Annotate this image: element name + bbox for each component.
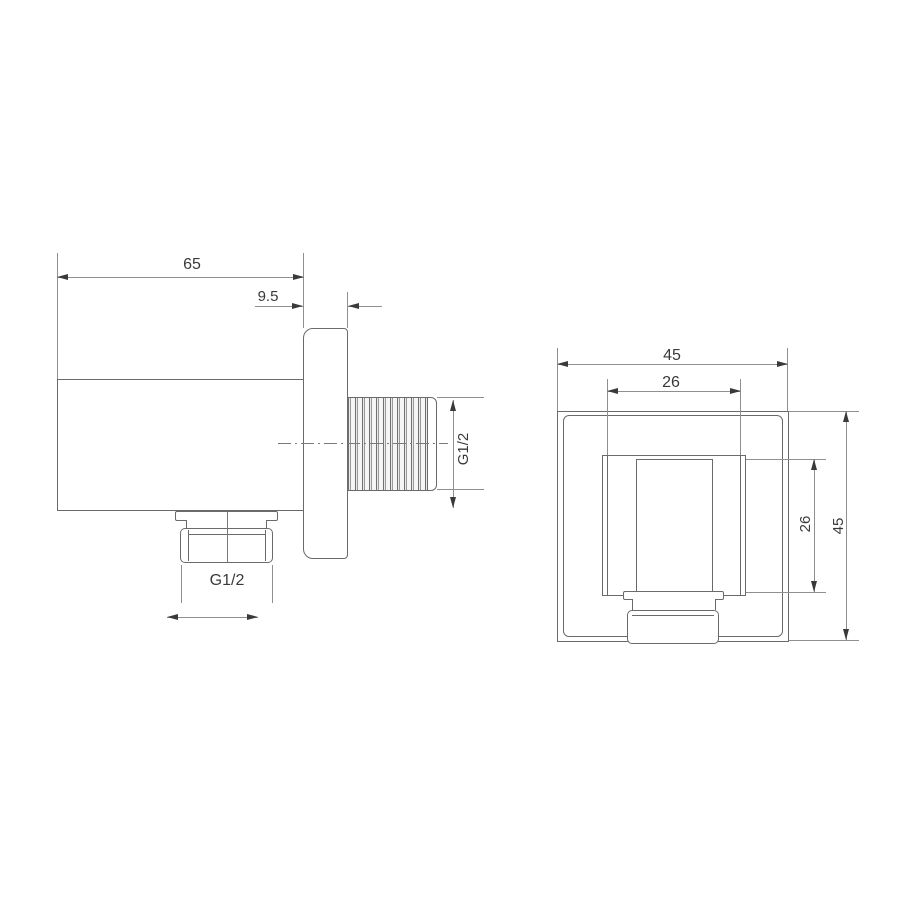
extension-line — [181, 565, 182, 603]
extension-line — [789, 640, 859, 641]
arrowhead — [167, 614, 178, 620]
extension-line — [272, 565, 273, 603]
dimension-line — [167, 617, 258, 618]
dim-body-height-label: 26 — [798, 516, 814, 533]
nut-chamfer-top — [632, 615, 714, 616]
arrowhead — [450, 400, 456, 411]
front-neck — [632, 599, 716, 610]
extension-line — [557, 348, 558, 411]
dim-plate-width-label: 45 — [650, 347, 694, 365]
arrowhead — [607, 388, 618, 394]
elbow-body-outline — [57, 379, 303, 511]
extension-line — [57, 253, 58, 379]
arrowhead — [292, 303, 303, 309]
body-edge-left — [607, 456, 608, 595]
arrowhead — [811, 581, 817, 592]
front-nut — [627, 610, 719, 644]
arrowhead — [730, 388, 741, 394]
center-line — [278, 443, 448, 444]
arrowhead — [348, 303, 359, 309]
dim-outlet-thread-label: G1/2 — [456, 433, 472, 466]
arrowhead — [247, 614, 258, 620]
arrowhead — [777, 361, 788, 367]
extension-line — [303, 253, 304, 328]
extension-line — [347, 292, 348, 328]
technical-drawing-canvas: 65 9.5 G1/2 G1/2 — [0, 0, 900, 900]
arrowhead — [557, 361, 568, 367]
arrowhead — [843, 629, 849, 640]
body-front-face — [636, 459, 713, 592]
dim-bottom-thread-label: G1/2 — [197, 572, 257, 590]
body-edge-right — [740, 456, 741, 595]
arrowhead — [450, 497, 456, 508]
extension-line — [787, 348, 788, 411]
extension-line — [746, 592, 826, 593]
dim-depth-label: 65 — [170, 256, 214, 274]
arrowhead — [843, 411, 849, 422]
arrowhead — [293, 274, 304, 280]
threaded-outlet — [347, 397, 437, 491]
dim-plate-height-label: 45 — [831, 518, 847, 535]
extension-line — [437, 489, 484, 490]
dim-body-width-label: 26 — [649, 374, 693, 392]
arrowhead — [811, 459, 817, 470]
extension-line — [437, 397, 484, 398]
dimension-line — [453, 400, 454, 508]
thread-texture — [348, 398, 427, 490]
arrowhead — [57, 274, 68, 280]
dim-plate-thickness-label: 9.5 — [246, 288, 290, 306]
nut-center-line — [227, 512, 228, 562]
dimension-line — [57, 277, 304, 278]
thread-chamfer-line — [427, 398, 428, 490]
dimension-line — [814, 459, 815, 592]
